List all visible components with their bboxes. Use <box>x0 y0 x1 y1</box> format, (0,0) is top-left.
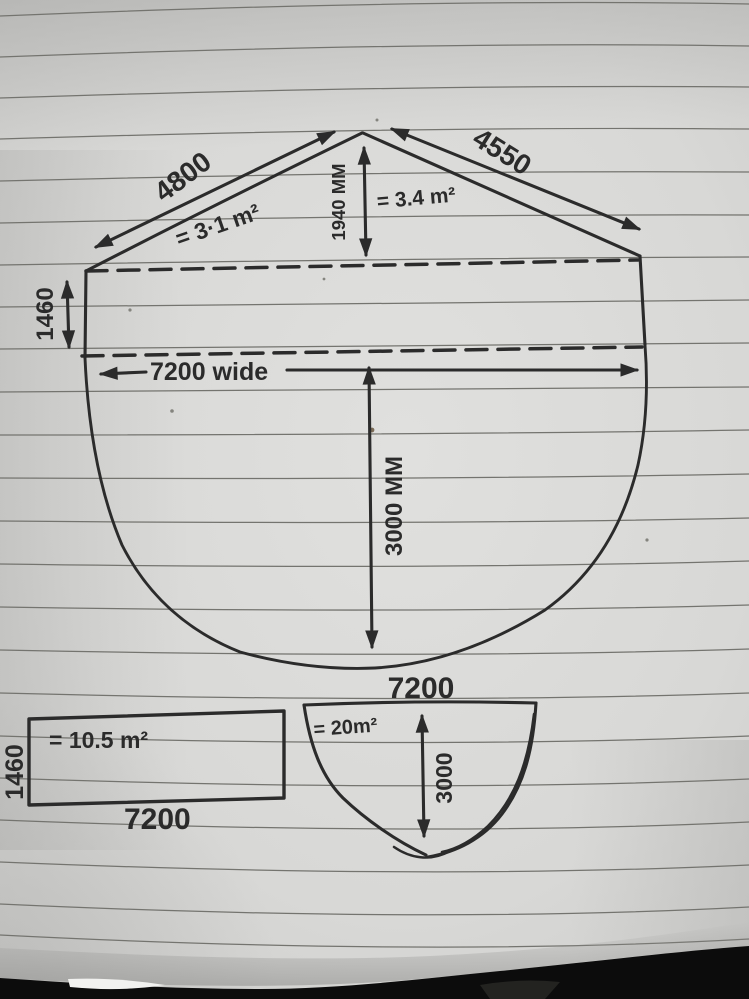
svg-text:3000 MM: 3000 MM <box>381 456 408 556</box>
svg-text:= 20m²: = 20m² <box>313 715 379 741</box>
svg-text:7200 wide: 7200 wide <box>150 358 268 386</box>
svg-text:7200: 7200 <box>388 672 455 705</box>
svg-text:3000: 3000 <box>431 752 457 803</box>
svg-text:1460: 1460 <box>32 287 59 340</box>
svg-text:1460: 1460 <box>1 744 29 800</box>
svg-text:1940 MM: 1940 MM <box>328 163 349 240</box>
svg-text:7200: 7200 <box>124 803 191 836</box>
svg-text:= 10.5 m²: = 10.5 m² <box>49 727 148 753</box>
